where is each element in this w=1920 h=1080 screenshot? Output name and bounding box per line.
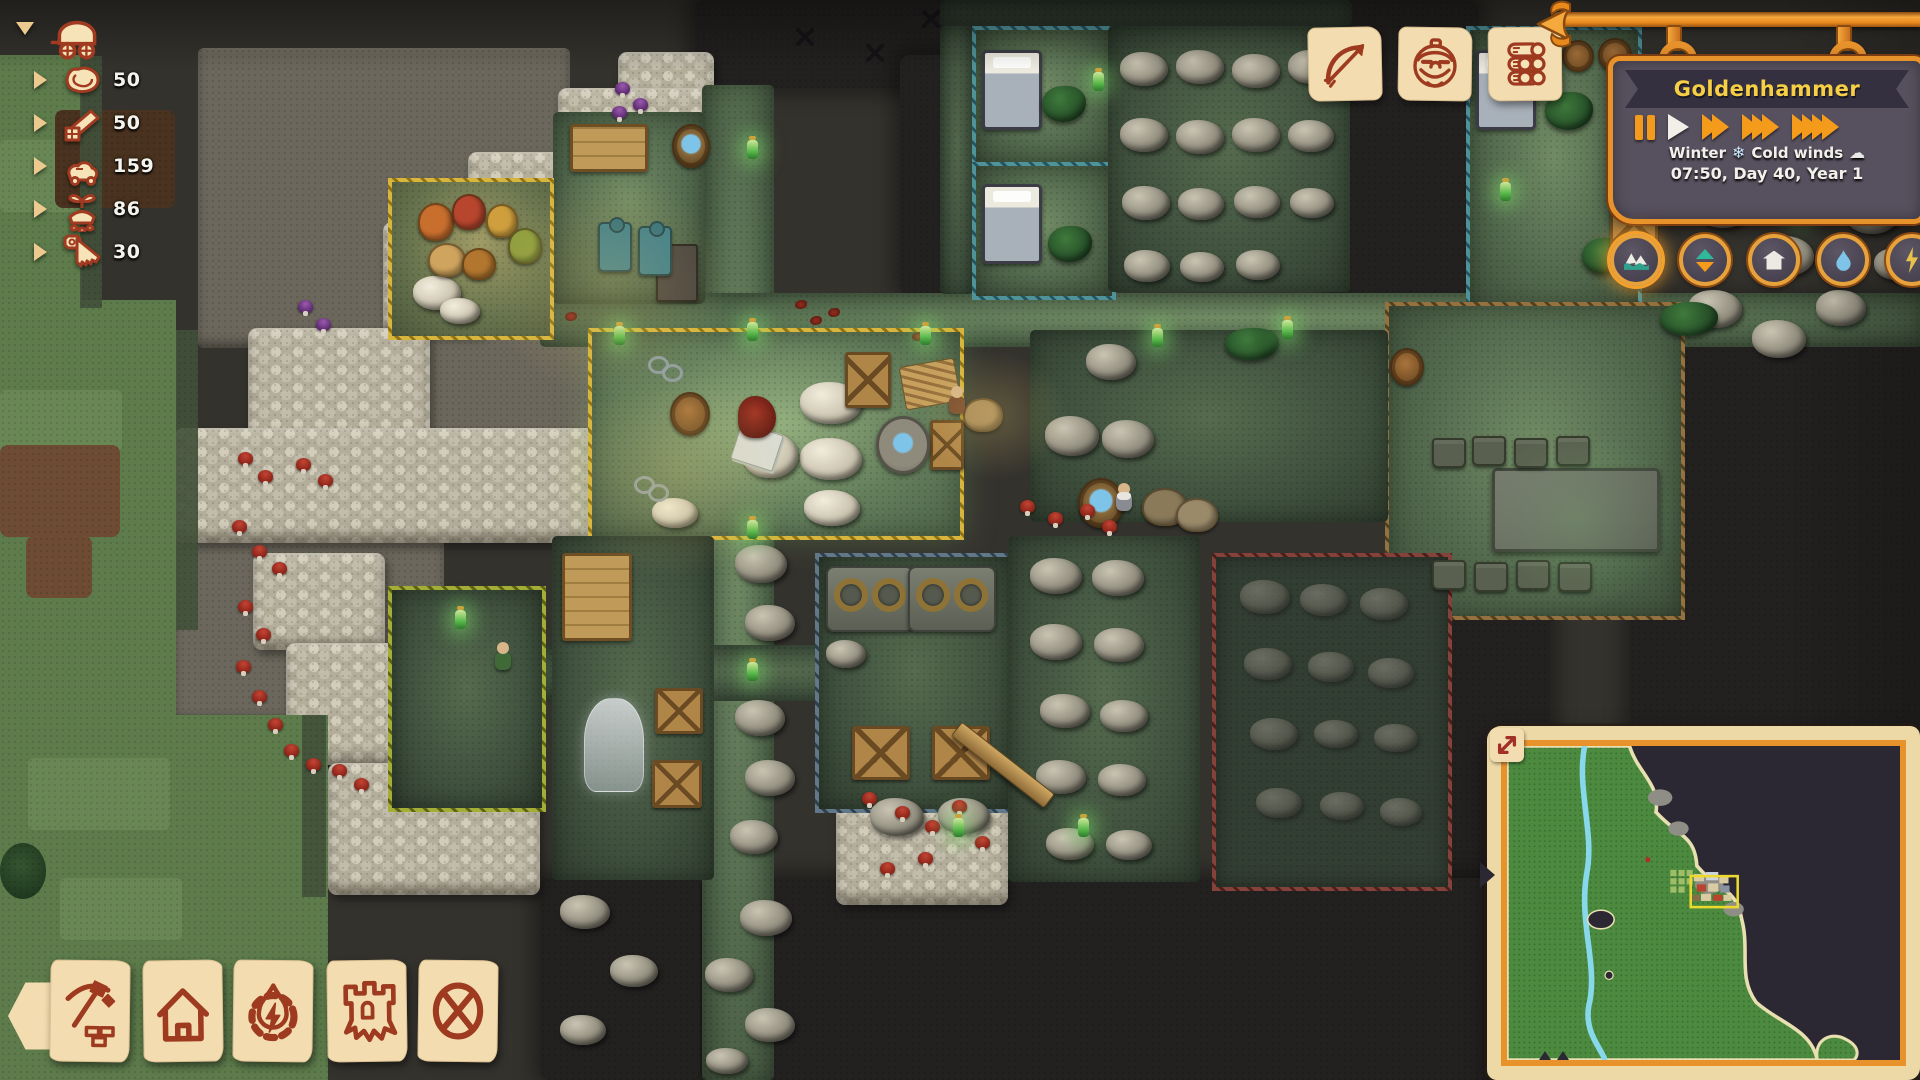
- mushroom: [272, 562, 287, 575]
- resource-row-seeds[interactable]: 86: [34, 187, 140, 231]
- room-room-sw: [388, 586, 546, 812]
- mushroom: [615, 82, 630, 95]
- mushroom: [880, 862, 895, 875]
- sack: [462, 248, 496, 280]
- chair: [1514, 438, 1548, 468]
- lightning-icon: [1903, 247, 1920, 273]
- boulder: [745, 605, 795, 641]
- build-button[interactable]: [49, 960, 130, 1063]
- planks-icon: [59, 100, 105, 146]
- terrain-moss: [176, 330, 198, 630]
- dwarf: [492, 642, 514, 672]
- boulder: [1250, 718, 1298, 750]
- boulder: [1320, 792, 1364, 820]
- mushroom: [318, 474, 333, 487]
- boulder: [826, 640, 866, 668]
- resource-count: 30: [113, 241, 140, 263]
- mushroom: [306, 758, 321, 771]
- lantern: [1078, 818, 1089, 837]
- minimap-map: [1507, 746, 1900, 1060]
- hunting-button[interactable]: [1307, 26, 1383, 102]
- boulder: [560, 1015, 606, 1045]
- boulder: [1030, 624, 1082, 660]
- terrain-grass2: [28, 758, 170, 830]
- boulder: [740, 900, 792, 936]
- boulder: [1120, 52, 1168, 86]
- defense-button[interactable]: [326, 959, 407, 1062]
- mountains-icon: [1623, 249, 1650, 271]
- castle-icon: [335, 972, 398, 1051]
- minimap-side-arrow[interactable]: [1480, 862, 1495, 888]
- boulder: [1380, 798, 1422, 826]
- boulder: [1122, 186, 1170, 220]
- chains: [648, 356, 682, 380]
- speed-3x-button[interactable]: [1742, 114, 1779, 140]
- boulder: [1176, 120, 1224, 154]
- speed-controls: [1635, 113, 1920, 141]
- house-icon: [151, 972, 214, 1051]
- room-corridor-bedside: [940, 26, 974, 294]
- sack: [428, 243, 466, 277]
- view-buildings-button[interactable]: [1748, 234, 1800, 286]
- dwarf-face-icon: [1407, 36, 1464, 93]
- white-boulder: [800, 438, 862, 480]
- white-boulder: [440, 298, 480, 324]
- wind-icon: ☁: [1849, 143, 1865, 162]
- boulder: [1102, 420, 1154, 458]
- resource-count: 159: [113, 155, 154, 177]
- expand-caret-icon: [34, 157, 47, 175]
- boulder: [1092, 560, 1144, 596]
- sack: [508, 228, 542, 264]
- view-elevation-button[interactable]: [1679, 234, 1731, 286]
- boulder: [1124, 250, 1170, 282]
- boulder: [1816, 290, 1866, 326]
- up-down-arrows-icon: [1696, 249, 1714, 272]
- water-barrel: [672, 124, 710, 168]
- mining-mark: [862, 40, 888, 66]
- mushroom: [252, 690, 267, 703]
- cancel-circle-icon: [427, 972, 490, 1051]
- room-top-strip: [940, 0, 1352, 26]
- lantern: [1152, 328, 1163, 347]
- resources-collapse-caret[interactable]: [16, 22, 34, 35]
- mushroom: [296, 458, 311, 471]
- bed: [982, 50, 1042, 130]
- boulder: [745, 760, 795, 796]
- boulder: [1300, 584, 1348, 616]
- mushroom: [252, 545, 267, 558]
- machine: [826, 566, 914, 632]
- lantern: [747, 520, 758, 539]
- boulder: [1120, 118, 1168, 152]
- lantern: [1282, 320, 1293, 339]
- play-button[interactable]: [1668, 114, 1689, 140]
- armor-stand: [638, 226, 672, 276]
- sack: [1176, 498, 1218, 532]
- sack: [452, 194, 486, 230]
- view-terrain-button[interactable]: [1610, 234, 1662, 286]
- boulder: [1290, 188, 1334, 218]
- boulder: [1256, 788, 1302, 818]
- mushroom: [918, 852, 933, 865]
- mushroom: [895, 806, 910, 819]
- boulder: [1368, 658, 1414, 688]
- speed-4x-button[interactable]: [1792, 114, 1839, 140]
- boulder: [1045, 416, 1099, 456]
- sign-pole: [1552, 12, 1920, 27]
- boulder: [1100, 700, 1148, 732]
- resource-count: 50: [113, 112, 140, 134]
- boulder: [1308, 652, 1354, 682]
- boulder: [706, 1048, 748, 1074]
- machine: [908, 566, 996, 632]
- terrain-grass2: [60, 878, 182, 940]
- boulder: [560, 895, 610, 929]
- chair: [1432, 438, 1466, 468]
- chair: [1474, 562, 1508, 592]
- lantern: [1093, 72, 1104, 91]
- bed: [982, 184, 1042, 264]
- mushroom: [238, 452, 253, 465]
- boulder: [730, 820, 778, 854]
- armor-stand: [598, 222, 632, 272]
- mushroom: [1080, 504, 1095, 517]
- saw-icon: [59, 229, 105, 275]
- barrel: [1390, 348, 1424, 386]
- sack: [418, 203, 454, 241]
- well: [876, 416, 930, 474]
- boulder: [1094, 628, 1144, 662]
- dresser: [562, 553, 632, 641]
- crate: [652, 760, 702, 808]
- boulder: [1180, 252, 1224, 282]
- lantern: [614, 326, 625, 345]
- boulder: [735, 545, 787, 583]
- boulder: [1098, 764, 1146, 796]
- boulder: [735, 700, 785, 736]
- boulder: [1232, 118, 1280, 152]
- boulder: [1374, 724, 1418, 752]
- boulder: [705, 958, 753, 992]
- curtain: [584, 698, 644, 792]
- dwarf: [946, 386, 968, 416]
- dresser: [570, 124, 648, 172]
- boulder: [1234, 186, 1280, 218]
- white-boulder: [804, 490, 860, 526]
- speed-2x-button[interactable]: [1702, 114, 1729, 140]
- boulder: [610, 955, 658, 987]
- mushroom: [1102, 520, 1117, 533]
- mushroom: [1048, 512, 1063, 525]
- clock-panel: Goldenhammer Winter ❄ Cold winds ☁ 07:50…: [1608, 56, 1920, 224]
- boulder: [745, 1008, 795, 1042]
- datetime-label: 07:50, Day 40, Year 1: [1613, 164, 1920, 183]
- chair: [1556, 436, 1590, 466]
- boulder: [1086, 344, 1136, 380]
- settlement-name: Goldenhammer: [1674, 77, 1861, 101]
- terrain-grass2: [0, 390, 122, 452]
- weather-label: Cold winds: [1751, 144, 1843, 162]
- resource-row-saw[interactable]: 30: [34, 230, 140, 274]
- terrain-moss: [302, 715, 326, 897]
- boulder: [1236, 250, 1280, 280]
- dining-table: [1492, 468, 1660, 552]
- lantern: [747, 662, 758, 681]
- rooms-button[interactable]: [142, 959, 223, 1062]
- mushroom: [862, 792, 877, 805]
- mushroom: [354, 778, 369, 791]
- boulder: [1240, 580, 1290, 614]
- crate: [930, 420, 964, 470]
- boulder: [1040, 694, 1090, 728]
- view-toggles: [1610, 234, 1920, 286]
- season-label: Winter: [1669, 144, 1726, 162]
- mushroom: [236, 660, 251, 673]
- lantern: [1500, 182, 1511, 201]
- terrain-void: [700, 878, 1510, 1080]
- chains: [634, 476, 668, 500]
- crate: [655, 688, 703, 734]
- lantern: [953, 818, 964, 837]
- resource-row-planks[interactable]: 50: [34, 101, 140, 145]
- boulder: [1314, 720, 1358, 748]
- terrain-dirt: [0, 445, 120, 537]
- resource-row-stone[interactable]: 159: [34, 144, 154, 188]
- utilities-button[interactable]: [232, 960, 313, 1063]
- mining-mark: [792, 24, 818, 50]
- chair: [1432, 560, 1466, 590]
- red-cloth: [738, 396, 776, 438]
- mushroom: [952, 800, 967, 813]
- minimap-frame: [1501, 740, 1906, 1066]
- chair: [1516, 560, 1550, 590]
- sack: [963, 398, 1003, 432]
- mining-mark: [918, 6, 944, 32]
- build-hammer-icon: [59, 972, 122, 1051]
- season-status: Winter ❄ Cold winds ☁: [1613, 143, 1920, 162]
- mushroom: [612, 106, 627, 119]
- boulder: [1178, 188, 1224, 220]
- mushroom: [925, 820, 940, 833]
- mushroom: [975, 836, 990, 849]
- minimap-expand-button[interactable]: [1490, 728, 1524, 762]
- expand-caret-icon: [34, 71, 47, 89]
- dwarf: [1113, 483, 1135, 513]
- pause-button[interactable]: [1635, 115, 1655, 140]
- lantern: [747, 140, 758, 159]
- terrain-treeblob: [0, 843, 46, 899]
- gear-drop-icon: [242, 972, 305, 1051]
- boulder: [1752, 320, 1806, 358]
- resource-count: 86: [113, 198, 140, 220]
- expand-caret-icon: [34, 200, 47, 218]
- spear-tip-icon: [1536, 0, 1596, 48]
- home-icon: [1763, 251, 1785, 270]
- snowflake-icon: ❄: [1732, 143, 1745, 162]
- white-boulder: [652, 498, 698, 528]
- water-drop-icon: [1834, 249, 1853, 272]
- resource-count: 50: [113, 69, 140, 91]
- stone-icon: [59, 143, 105, 189]
- crate: [845, 352, 891, 408]
- barrel: [670, 392, 710, 436]
- mushroom: [1020, 500, 1035, 513]
- view-water-button[interactable]: [1817, 234, 1869, 286]
- crate: [852, 726, 910, 780]
- expand-caret-icon: [34, 243, 47, 261]
- terrain-dirt: [26, 536, 92, 598]
- settlement-banner: Goldenhammer: [1625, 70, 1909, 108]
- mushroom: [238, 600, 253, 613]
- bow-icon: [1316, 35, 1373, 92]
- minimap[interactable]: [1487, 726, 1920, 1080]
- boulder: [1244, 648, 1292, 680]
- mushroom: [232, 520, 247, 533]
- cancel-button[interactable]: [417, 960, 498, 1063]
- boulder: [1360, 588, 1408, 620]
- boulder: [1288, 120, 1334, 152]
- mushroom: [268, 718, 283, 731]
- mushroom: [258, 470, 273, 483]
- mushroom: [298, 300, 313, 313]
- boulder: [1232, 54, 1280, 88]
- chair: [1558, 562, 1592, 592]
- boulder: [1176, 50, 1224, 84]
- boulder: [1030, 558, 1082, 594]
- resource-row-meat[interactable]: 50: [34, 58, 140, 102]
- mushroom: [332, 764, 347, 777]
- view-power-button[interactable]: [1886, 234, 1920, 286]
- mushroom: [316, 318, 331, 331]
- boulder: [1106, 830, 1152, 860]
- mushroom: [633, 98, 648, 111]
- expand-caret-icon: [34, 114, 47, 132]
- lantern: [920, 326, 931, 345]
- dwarves-button[interactable]: [1397, 26, 1472, 101]
- chair: [1472, 436, 1506, 466]
- mushroom: [256, 628, 271, 641]
- expand-arrows-icon: [1493, 731, 1521, 759]
- lantern: [455, 610, 466, 629]
- meat-icon: [59, 57, 105, 103]
- mushroom: [284, 744, 299, 757]
- seeds-icon: [59, 186, 105, 232]
- lantern: [747, 322, 758, 341]
